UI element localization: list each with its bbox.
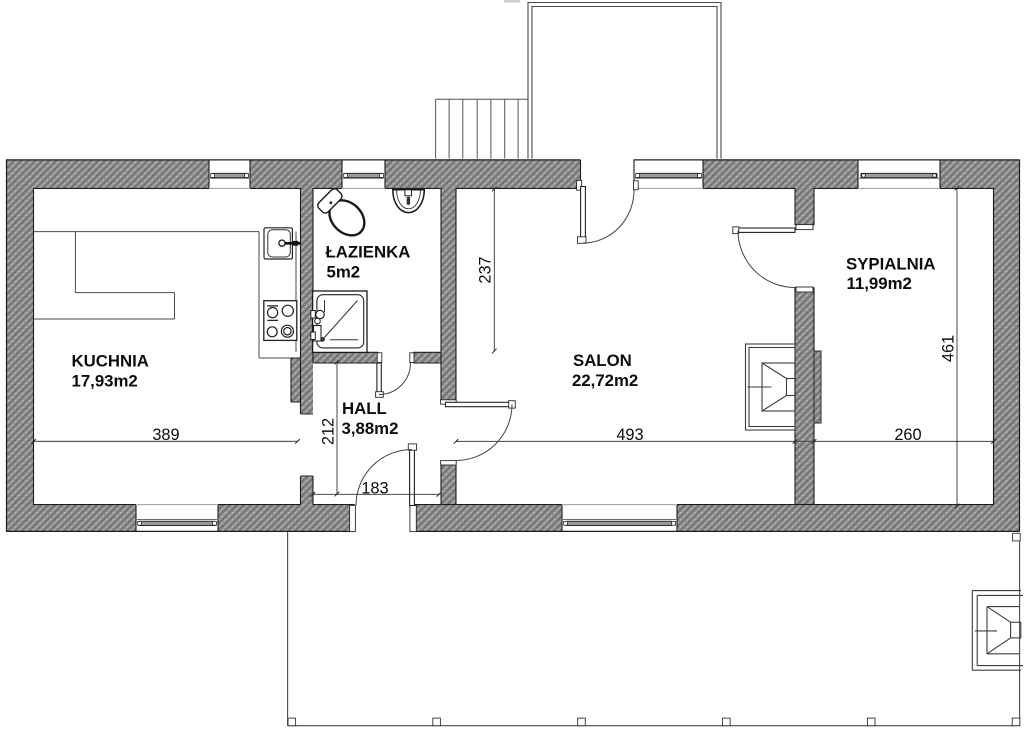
svg-text:3,88m2: 3,88m2: [342, 419, 399, 438]
svg-text:212: 212: [320, 418, 338, 445]
svg-text:5m2: 5m2: [327, 263, 361, 282]
svg-text:493: 493: [616, 426, 643, 444]
svg-text:22,72m2: 22,72m2: [572, 371, 638, 390]
svg-text:HALL: HALL: [342, 399, 387, 418]
svg-text:260: 260: [894, 426, 921, 444]
svg-text:183: 183: [361, 480, 388, 498]
svg-text:237: 237: [477, 256, 495, 283]
svg-text:11,99m2: 11,99m2: [847, 274, 912, 293]
svg-text:389: 389: [152, 426, 179, 444]
svg-text:KUCHNIA: KUCHNIA: [72, 352, 149, 371]
svg-text:17,93m2: 17,93m2: [72, 372, 138, 391]
svg-text:SYPIALNIA: SYPIALNIA: [846, 255, 936, 274]
svg-text:461: 461: [940, 335, 958, 362]
svg-text:SALON: SALON: [573, 351, 632, 370]
svg-text:ŁAZIENKA: ŁAZIENKA: [326, 243, 411, 262]
